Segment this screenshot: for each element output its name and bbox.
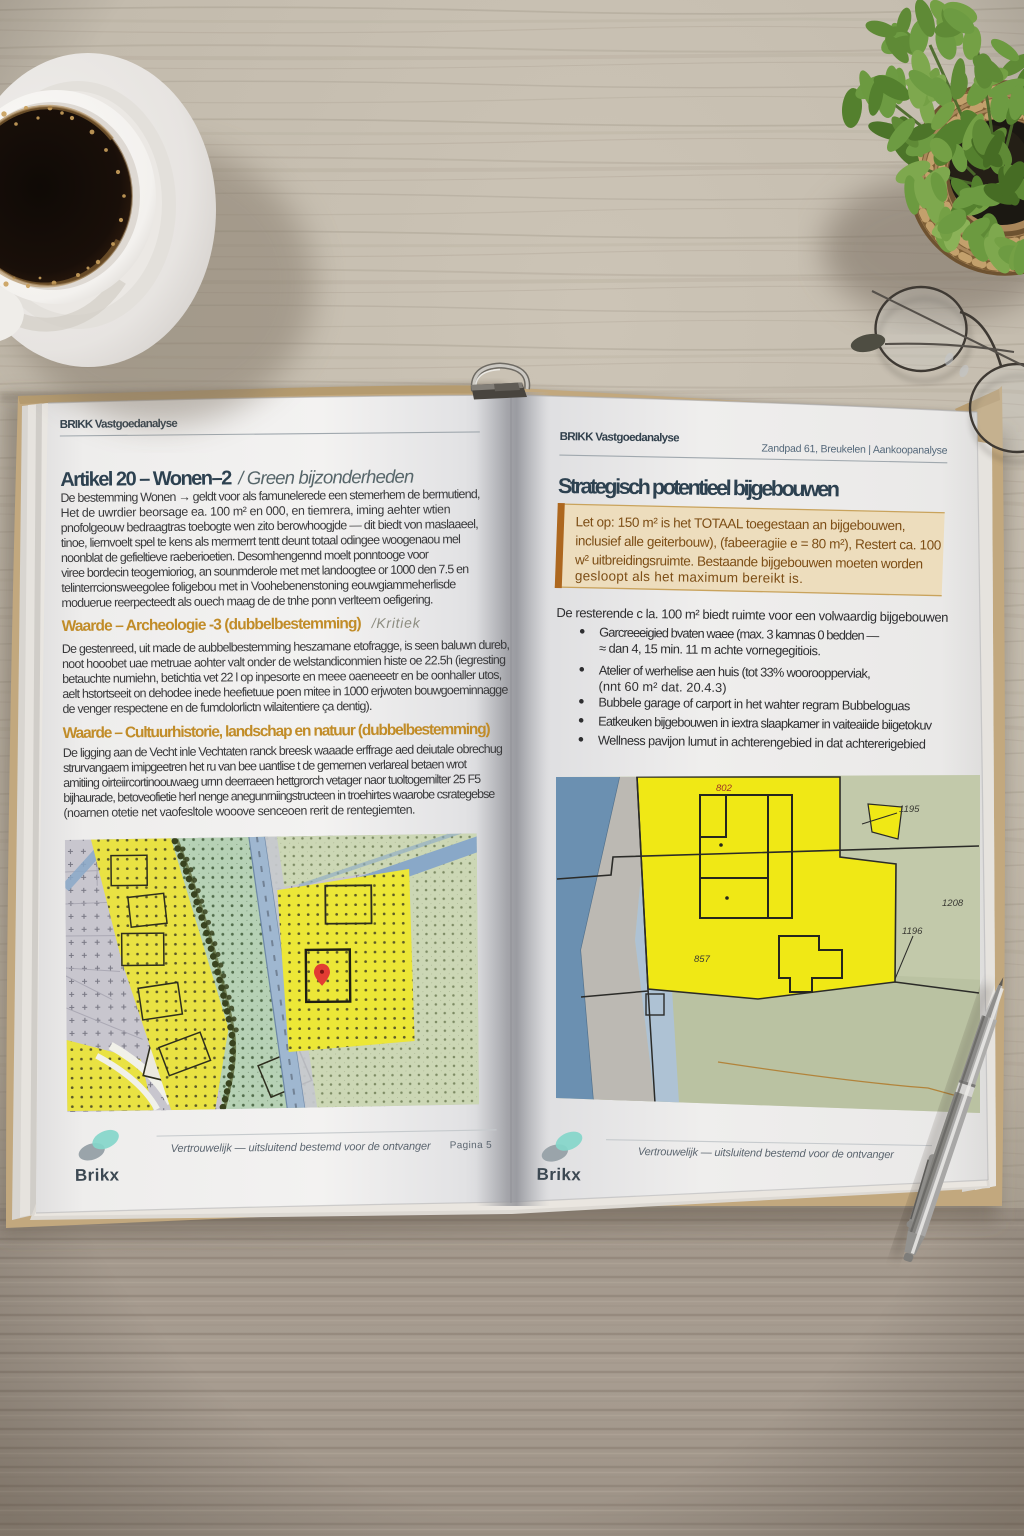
svg-text:(nnt 60 m² dat. 20.4.3): (nnt 60 m² dat. 20.4.3) — [598, 679, 726, 696]
svg-text:802: 802 — [716, 783, 733, 794]
svg-text:Vertrouwelijk — uitsluitend be: Vertrouwelijk — uitsluitend bestemd voor… — [171, 1140, 432, 1155]
svg-text:857: 857 — [694, 954, 711, 965]
svg-text:BRIKK Vastgoedanalyse: BRIKK Vastgoedanalyse — [560, 431, 680, 444]
svg-text:/Kritiek: /Kritiek — [371, 615, 421, 631]
svg-text:1195: 1195 — [899, 804, 920, 815]
svg-text:gesloopt als het maximum berei: gesloopt als het maximum bereikt is. — [575, 568, 803, 586]
svg-text:Zandpad 61, Breukelen | Aank: Zandpad 61, Breukelen | Aankoopanalyse — [761, 442, 947, 456]
svg-text:Waarde – Archeologie -3 (dubbe: Waarde – Archeologie -3 (dubbelbestemmin… — [62, 615, 362, 635]
svg-text:de venger respectene en de fum: de venger respectene en de fumdolorlictn… — [62, 699, 372, 716]
svg-text:Pagina 5: Pagina 5 — [450, 1140, 493, 1151]
svg-text:Brikx: Brikx — [536, 1165, 581, 1185]
svg-text:1208: 1208 — [942, 898, 964, 909]
svg-text:/ Green bijzonderheden: / Green bijzonderheden — [236, 466, 414, 489]
svg-text:Brikx: Brikx — [75, 1165, 120, 1184]
svg-text:Strategisch potentieel bijgebo: Strategisch potentieel bijgebouwen — [558, 474, 840, 501]
svg-text:Artikel 20 – Wonen–2: Artikel 20 – Wonen–2 — [60, 467, 232, 491]
svg-text:≈ dan 4, 15 min. 11 m achte v: ≈ dan 4, 15 min. 11 m achte vornegegitio… — [599, 641, 821, 659]
svg-text:1196: 1196 — [902, 926, 923, 937]
